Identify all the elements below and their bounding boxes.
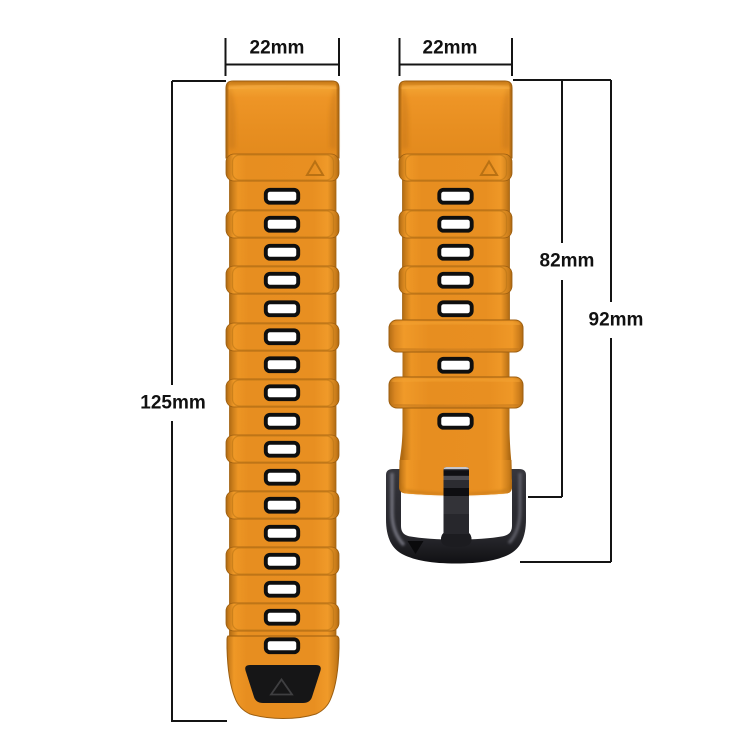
- svg-text:22mm: 22mm: [423, 38, 478, 59]
- svg-text:92mm: 92mm: [589, 310, 644, 331]
- svg-text:125mm: 125mm: [140, 393, 206, 414]
- svg-text:82mm: 82mm: [540, 251, 595, 272]
- svg-text:22mm: 22mm: [250, 38, 305, 59]
